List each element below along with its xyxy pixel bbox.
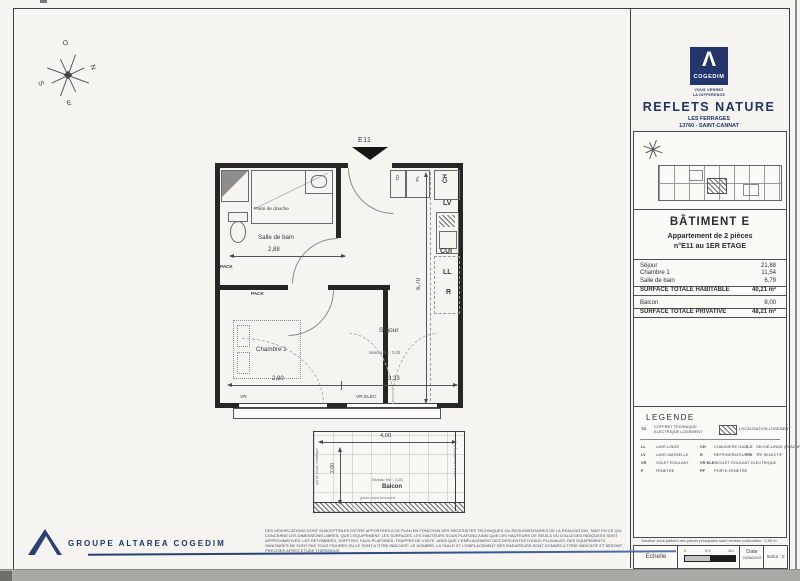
legend-label: REFRIGERATEUR bbox=[714, 453, 748, 457]
slab-ledge bbox=[233, 408, 441, 419]
dim-living-width: 3,33 bbox=[388, 376, 400, 382]
scale-tick-05: 0,5 bbox=[705, 548, 711, 553]
vr-elec-label: VR ELEC bbox=[356, 395, 377, 400]
legend-hatch-swatch bbox=[719, 425, 737, 435]
compass-north-label: N bbox=[88, 64, 96, 71]
surface-row: Salle de bain 6,79 bbox=[634, 278, 786, 285]
scale-cell: Echelle bbox=[633, 545, 679, 569]
legend-label: SECHE-LINGE (PLACARD) bbox=[756, 445, 800, 449]
dim-arrow bbox=[424, 399, 428, 404]
scale-bar-cell: 0 0,5 1m bbox=[677, 545, 741, 569]
legend-label: PORTE-FENETRE bbox=[714, 469, 747, 473]
legend-label: VOLET ROULANT ELECTRIQUE bbox=[717, 461, 776, 465]
scale-tick-0: 0 bbox=[684, 548, 686, 553]
key-plan-building bbox=[658, 165, 782, 201]
legend-abbr: VR bbox=[641, 461, 646, 465]
unit-title-box: BÂTIMENT E Appartement de 2 pièces n°E11… bbox=[633, 209, 787, 261]
date-cell: Date 24/06/2019 bbox=[739, 545, 765, 569]
date-value: 24/06/2019 bbox=[740, 556, 764, 560]
apartment-type: Appartement de 2 pièces bbox=[634, 231, 786, 240]
surface-total-habitable-row: SURFACE TOTALE HABITABLE 40,21 m² bbox=[634, 287, 786, 294]
dim-line-balcony-d bbox=[340, 450, 341, 502]
washbasin-icon bbox=[305, 170, 333, 194]
cogedim-brand-label: COGEDIM bbox=[690, 74, 728, 80]
legend-label: CHAUDIERE GAZ bbox=[714, 445, 747, 449]
legend-abbr: F bbox=[641, 469, 643, 473]
legend-td-abbr: TD bbox=[641, 427, 646, 431]
dim-balcony-depth: 2,00 bbox=[330, 463, 336, 473]
dim-arrow bbox=[341, 254, 346, 258]
boiler-box: CH bbox=[434, 170, 460, 200]
legend-abbr: TRI bbox=[746, 453, 752, 457]
surface-row-label: Salle de bain bbox=[640, 278, 675, 285]
balcony-row-value: 8,00 bbox=[764, 300, 776, 307]
vr-label: VR bbox=[240, 395, 247, 400]
project-title: REFLETS NATURE bbox=[630, 100, 788, 114]
wall-bath-bedroom-1 bbox=[220, 285, 288, 290]
dim-arrow bbox=[338, 500, 342, 505]
total-private-label: SURFACE TOTALE PRIVATIVE bbox=[640, 309, 726, 316]
project-address-1: LES FERRAGES bbox=[630, 116, 788, 122]
dim-bedroom-width: 2,80 bbox=[272, 376, 284, 382]
altarea-logo-icon bbox=[28, 529, 64, 556]
dim-arrow bbox=[229, 254, 234, 258]
balcony-guard-left-label: garde-corps métallique bbox=[315, 448, 319, 485]
scan-edge-bottom bbox=[0, 569, 800, 581]
legend-label: VOLET ROULANT bbox=[656, 461, 689, 465]
living-level-label: Niveau fini : 0,00 bbox=[369, 350, 400, 355]
surface-row-value: 6,79 bbox=[764, 278, 776, 285]
legend-divider bbox=[640, 439, 780, 440]
index-value: Indice : 0 bbox=[764, 546, 787, 567]
ch-label: CH bbox=[442, 174, 449, 183]
surface-row-value: 21,88 bbox=[761, 263, 776, 270]
dim-arrow bbox=[338, 447, 342, 452]
dim-depth: 6,70 bbox=[416, 278, 422, 290]
legend-label: FENETRE bbox=[656, 469, 674, 473]
balcony-railing-bottom bbox=[313, 502, 465, 513]
wall-bath-entry bbox=[336, 168, 341, 238]
floor-plan-sheet: O N E S E11 Paroi de douche Salle de bai… bbox=[0, 0, 800, 581]
dim-arrow bbox=[318, 440, 323, 444]
r-label: R bbox=[446, 289, 451, 296]
living-label: Séjour bbox=[379, 327, 399, 334]
cogedim-logo-glyph: Λ bbox=[690, 47, 728, 73]
cogedim-logo: Λ COGEDIM bbox=[690, 47, 728, 85]
wall-top-right bbox=[392, 163, 463, 168]
balcony-level-label: Niveau fini : -0,02 bbox=[372, 477, 403, 482]
pl-label: PL bbox=[415, 176, 420, 182]
dim-arrow bbox=[453, 383, 458, 387]
surface-table: Séjour 21,88 Chambre 1 11,54 Salle de ba… bbox=[633, 259, 787, 319]
cogedim-tagline-2: LA DIFFERENCE bbox=[684, 93, 734, 97]
dim-bath-width: 2,88 bbox=[268, 247, 280, 253]
compass-rose-icon: O N E S bbox=[40, 48, 96, 104]
wall-top-left bbox=[215, 163, 348, 168]
scan-smudge bbox=[0, 571, 12, 581]
key-plan-unit-highlight bbox=[707, 178, 727, 194]
total-habitable-label: SURFACE TOTALE HABITABLE bbox=[640, 287, 730, 294]
key-plan-compass-icon bbox=[642, 139, 664, 161]
scan-edge-right bbox=[795, 0, 797, 569]
dim-line-depth bbox=[426, 176, 427, 400]
compass-east-label: E bbox=[66, 99, 73, 107]
legend-label: LAVE-LINGE bbox=[656, 445, 679, 449]
scale-label: Echelle bbox=[634, 546, 678, 567]
surface-row: Séjour 21,88 bbox=[634, 263, 786, 270]
balcony-label: Balcon bbox=[382, 484, 402, 490]
balcony-guard-bottom-label: garde-corps serrurerie bbox=[360, 496, 396, 500]
electrical-box-td: TD bbox=[390, 170, 406, 198]
lv-label: LV bbox=[443, 200, 451, 207]
pack-label-2: PACK bbox=[251, 291, 264, 296]
bathroom-label: Salle de bain bbox=[258, 234, 294, 241]
td-label: TD bbox=[395, 175, 400, 181]
notes-box bbox=[633, 317, 787, 408]
balcony-guard-right-label: brise vue métallique bbox=[453, 444, 457, 476]
surface-row-value: 11,54 bbox=[761, 270, 776, 277]
group-name: GROUPE ALTAREA COGEDIM bbox=[68, 539, 226, 548]
legend-abbr: CH bbox=[700, 445, 706, 449]
kitchen-worktop-dashed-line bbox=[430, 172, 432, 401]
project-address-2: 13760 - SAINT-CANNAT bbox=[630, 123, 788, 129]
legend-hatch-label: LOCALISATION LOGEMENT bbox=[739, 427, 791, 431]
entry-unit-label: E11 bbox=[358, 137, 371, 144]
dim-arrow bbox=[424, 172, 428, 177]
cui-label: CUI bbox=[440, 248, 452, 255]
cogedim-tagline-1: VOUS VERREZ bbox=[684, 88, 734, 92]
dim-line-balcony-w bbox=[320, 442, 456, 443]
legend-abbr: VR ELEC bbox=[700, 461, 717, 465]
dim-tick bbox=[341, 381, 342, 390]
dim-balcony-width: 4,00 bbox=[380, 433, 391, 439]
balcony-row-label: Balcon bbox=[640, 300, 658, 307]
key-plan-box bbox=[633, 131, 787, 211]
wall-bath-bedroom-2 bbox=[328, 285, 390, 290]
surface-row: Chambre 1 11,54 bbox=[634, 270, 786, 277]
legend-title: LEGENDE bbox=[646, 413, 786, 422]
scan-mark-top bbox=[40, 0, 47, 3]
scale-bar-icon bbox=[684, 555, 736, 562]
date-label: Date bbox=[740, 549, 764, 555]
index-cell: Indice : 0 bbox=[763, 545, 788, 569]
entry-arrow-icon bbox=[352, 147, 388, 160]
shower-screen-label: Paroi de douche bbox=[254, 207, 289, 212]
legend-box: LEGENDE TD COFFRET TECHNIQUE ELECTRIQUE … bbox=[633, 406, 787, 538]
legend-abbr: S.C bbox=[746, 445, 753, 449]
dim-line-bottom bbox=[229, 385, 457, 386]
legend-abbr: LL bbox=[641, 445, 646, 449]
building-title: BÂTIMENT E bbox=[634, 216, 786, 228]
compass-south-label: S bbox=[36, 80, 44, 87]
total-habitable-value: 40,21 m² bbox=[752, 287, 776, 294]
legend-td-label: COFFRET TECHNIQUE ELECTRIQUE LOGEMENT bbox=[654, 425, 712, 434]
corner-basin-icon bbox=[221, 170, 249, 202]
wc-bowl-icon bbox=[230, 221, 246, 243]
legend-label: LAVE-VAISSELLE bbox=[656, 453, 688, 457]
scale-tick-1m: 1m bbox=[728, 548, 734, 553]
surface-balcony-row: Balcon 8,00 bbox=[634, 300, 786, 307]
legend-abbr: LV bbox=[641, 453, 646, 457]
dim-arrow bbox=[227, 383, 232, 387]
dim-line-bath bbox=[231, 256, 345, 257]
pack-label-1: PACK bbox=[220, 264, 233, 269]
disclaimer-text: DES MODIFICATIONS SONT SUSCEPTIBLES D'ET… bbox=[265, 529, 627, 552]
unit-number: n°E11 au 1ER ETAGE bbox=[634, 241, 786, 250]
total-private-value: 48,21 m² bbox=[752, 309, 776, 316]
legend-abbr: PF bbox=[700, 469, 705, 473]
surface-row-label: Chambre 1 bbox=[640, 270, 670, 277]
ceiling-height-note: Hauteur sous plafond des pièces principa… bbox=[633, 538, 785, 543]
ll-label: LL bbox=[443, 269, 452, 276]
legend-abbr: R bbox=[700, 453, 703, 457]
appliance-zone-dashed bbox=[434, 256, 460, 314]
legend-label: TRI SELECTIF bbox=[756, 453, 783, 457]
surface-row-label: Séjour bbox=[640, 263, 657, 270]
surface-total-private-row: SURFACE TOTALE PRIVATIVE 48,21 m² bbox=[634, 309, 786, 316]
bedroom-label: Chambre 1 bbox=[256, 346, 287, 353]
title-block-divider bbox=[630, 8, 631, 568]
